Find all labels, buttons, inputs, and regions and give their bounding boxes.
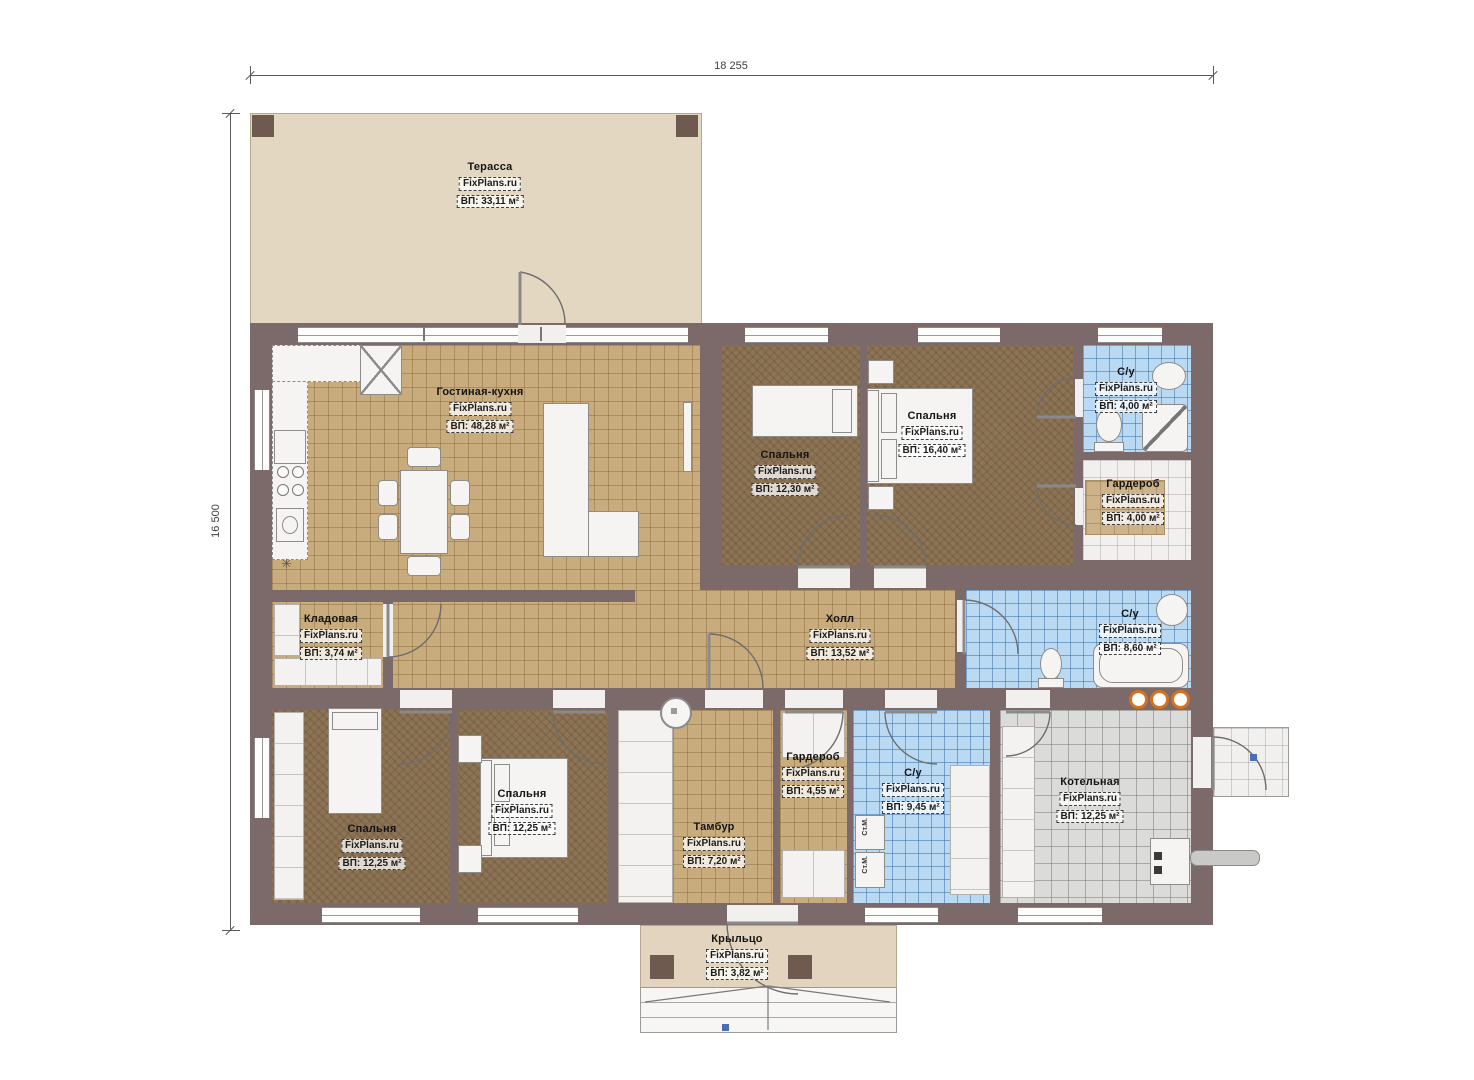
toilet-tank-master xyxy=(1094,442,1124,452)
brand-tag: FixPlans.ru xyxy=(1095,382,1157,395)
dining-chair xyxy=(450,480,470,506)
window-bathroom-master xyxy=(1098,327,1162,343)
brand-tag: FixPlans.ru xyxy=(882,783,944,796)
wall-pantry-top xyxy=(272,590,635,602)
door-opening-wardrobe-bottom xyxy=(785,690,843,708)
stove-burner xyxy=(277,466,289,478)
area-tag: ВП: 8,60 м² xyxy=(1099,642,1161,655)
room-name: Крыльцо xyxy=(706,933,768,945)
brand-tag: FixPlans.ru xyxy=(1099,624,1161,637)
door-opening-entrance xyxy=(727,905,798,923)
stove-burner xyxy=(292,484,304,496)
brand-tag: FixPlans.ru xyxy=(459,177,521,190)
door-opening-boiler xyxy=(1006,690,1050,708)
brand-tag: FixPlans.ru xyxy=(341,839,403,852)
boiler-control xyxy=(1154,866,1162,874)
tv-unit xyxy=(683,402,692,472)
bed-pillow xyxy=(881,393,897,433)
stove-burner xyxy=(277,484,289,496)
bed-pillow xyxy=(332,712,378,730)
area-tag: ВП: 12,25 м² xyxy=(338,857,405,870)
wall-marker xyxy=(1150,690,1169,709)
room-label-bathroom-master: С/у FixPlans.ru ВП: 4,00 м² xyxy=(1095,366,1157,414)
room-label-wardrobe-bottom: Гардероб FixPlans.ru ВП: 4,55 м² xyxy=(782,751,844,799)
room-name: С/у xyxy=(882,767,944,779)
wall-wardrobe-bath xyxy=(1073,560,1191,590)
room-name: Спальня xyxy=(488,788,555,800)
dimension-label-width: 18 255 xyxy=(714,60,748,72)
wall-bath-wardrobe xyxy=(1083,452,1191,460)
window-mullion xyxy=(423,327,425,341)
door-opening-bathroom-master xyxy=(1075,379,1083,417)
room-name: Гостиная-кухня xyxy=(436,386,523,398)
area-tag: ВП: 7,20 м² xyxy=(683,855,745,868)
closet-bedroom-left xyxy=(274,712,304,900)
room-name: Терасса xyxy=(457,161,524,173)
stove-burner xyxy=(292,466,304,478)
brand-tag: FixPlans.ru xyxy=(706,949,768,962)
room-name: Холл xyxy=(806,613,873,625)
area-tag: ВП: 12,25 м² xyxy=(1056,810,1123,823)
room-name: Кладовая xyxy=(300,613,362,625)
nightstand xyxy=(458,735,482,763)
area-tag: ВП: 3,82 м² xyxy=(706,967,768,980)
kitchen-sink-bowl xyxy=(282,516,298,534)
door-opening-bedroom-top-left xyxy=(798,567,850,588)
room-name: Гардероб xyxy=(1102,478,1164,490)
room-label-boiler-room: Котельная FixPlans.ru ВП: 12,25 м² xyxy=(1056,776,1123,824)
area-tag: ВП: 33,11 м² xyxy=(457,195,524,208)
room-label-terrace: Терасса FixPlans.ru ВП: 33,11 м² xyxy=(457,161,524,209)
closet-corridor xyxy=(618,710,673,903)
area-tag: ВП: 4,00 м² xyxy=(1102,512,1164,525)
window-boiler-room xyxy=(1018,907,1102,923)
washing-machine-1 xyxy=(855,815,885,850)
room-label-vestibule: Тамбур FixPlans.ru ВП: 7,20 м² xyxy=(683,821,745,869)
bed-pillow xyxy=(881,439,897,479)
area-tag: ВП: 12,25 м² xyxy=(488,822,555,835)
wall-master-suite xyxy=(1073,345,1083,560)
kitchen-fridge xyxy=(360,345,402,395)
room-name: С/у xyxy=(1095,366,1157,378)
wall-marker xyxy=(1171,690,1190,709)
nightstand xyxy=(458,845,482,873)
room-label-porch: Крыльцо FixPlans.ru ВП: 3,82 м² xyxy=(706,933,768,981)
door-opening-pantry xyxy=(383,604,393,657)
terrace-floor xyxy=(250,113,702,327)
door-opening-boiler-exterior xyxy=(1193,737,1211,788)
dining-chair xyxy=(450,514,470,540)
nightstand xyxy=(868,360,894,384)
window-mullion xyxy=(540,327,542,341)
brand-tag: FixPlans.ru xyxy=(449,402,511,415)
kitchen-counter-top xyxy=(272,345,362,382)
kitchen-cooktop xyxy=(274,430,306,464)
toilet-base-main xyxy=(1038,678,1064,688)
room-label-bedroom-master: Спальня FixPlans.ru ВП: 16,40 м² xyxy=(898,410,965,458)
brand-tag: FixPlans.ru xyxy=(754,465,816,478)
porch-floor xyxy=(640,925,897,989)
window-terrace-glazing xyxy=(298,327,688,343)
water-heater-core xyxy=(671,708,677,714)
room-label-bathroom-main: С/у FixPlans.ru ВП: 8,60 м² xyxy=(1099,608,1161,656)
kitchen-symbol: ✳ xyxy=(281,556,292,572)
porch-steps xyxy=(640,987,897,1033)
brand-tag: FixPlans.ru xyxy=(809,629,871,642)
room-name: Спальня xyxy=(338,823,405,835)
window-kitchen xyxy=(254,390,270,470)
area-tag: ВП: 13,52 м² xyxy=(806,647,873,660)
wall-marker xyxy=(1129,690,1148,709)
room-label-living-kitchen: Гостиная-кухня FixPlans.ru ВП: 48,28 м² xyxy=(436,386,523,434)
wall-laundry-boiler xyxy=(990,710,1000,903)
dimension-line-left xyxy=(230,113,231,930)
brand-tag: FixPlans.ru xyxy=(300,629,362,642)
wall-bedrooms xyxy=(860,345,867,565)
area-tag: ВП: 4,00 м² xyxy=(1095,400,1157,413)
window-bedroom-master xyxy=(918,327,1000,343)
terrace-column xyxy=(676,115,698,137)
wall-wardrobe-laundry xyxy=(847,710,853,903)
area-tag: ВП: 3,74 м² xyxy=(300,647,362,660)
window-bedroom-bottom-mid xyxy=(478,907,578,923)
room-name: Спальня xyxy=(898,410,965,422)
area-tag: ВП: 48,28 м² xyxy=(446,420,513,433)
room-name: Спальня xyxy=(751,449,818,461)
dining-chair xyxy=(407,556,441,576)
bed-headboard xyxy=(867,390,879,482)
door-opening-bedroom-bm xyxy=(553,690,605,708)
room-label-hall: Холл FixPlans.ru ВП: 13,52 м² xyxy=(806,613,873,661)
door-opening-bedroom-master xyxy=(874,567,926,588)
window-bedroom-left xyxy=(254,738,270,818)
room-name: Котельная xyxy=(1056,776,1123,788)
washing-machine-label: Ст.М. xyxy=(862,818,869,836)
porch-marker xyxy=(722,1024,729,1031)
toilet-bowl-main xyxy=(1040,648,1062,680)
door-opening-bathroom-main xyxy=(957,600,966,652)
stoop-marker xyxy=(1250,754,1257,761)
area-tag: ВП: 12,30 м² xyxy=(751,483,818,496)
room-label-wardrobe-master: Гардероб FixPlans.ru ВП: 4,00 м² xyxy=(1102,478,1164,526)
area-tag: ВП: 16,40 м² xyxy=(898,444,965,457)
floor-plan-canvas: 18 255 16 500 xyxy=(0,0,1474,1080)
room-label-bathroom-laundry: С/у FixPlans.ru ВП: 9,45 м² xyxy=(882,767,944,815)
dining-chair xyxy=(378,514,398,540)
washing-machine-label: Ст.М. xyxy=(862,856,869,874)
dining-table xyxy=(400,470,448,554)
washing-machine-2 xyxy=(855,852,885,888)
window-bedroom-bottom-left xyxy=(322,907,420,923)
wall-living-bedroom xyxy=(700,345,722,590)
wall-vestibule-wardrobe xyxy=(773,710,780,903)
brand-tag: FixPlans.ru xyxy=(491,804,553,817)
brand-tag: FixPlans.ru xyxy=(1102,494,1164,507)
wall-bedroom-corridor xyxy=(608,710,618,903)
closet-laundry xyxy=(950,765,990,895)
porch-column xyxy=(650,955,674,979)
wall-exterior-right xyxy=(1191,323,1213,925)
sofa-long-section xyxy=(543,403,589,557)
window-bathroom-laundry xyxy=(865,907,938,923)
door-opening-wardrobe-master xyxy=(1075,488,1083,525)
boiler-control xyxy=(1154,852,1162,860)
sofa-corner-section xyxy=(588,511,639,557)
closet-wardrobe-bottom xyxy=(782,850,845,898)
wall-bedrooms-bottom xyxy=(450,710,458,903)
room-label-pantry: Кладовая FixPlans.ru ВП: 3,74 м² xyxy=(300,613,362,661)
area-tag: ВП: 4,55 м² xyxy=(782,785,844,798)
room-label-bedroom-bottom-mid: Спальня FixPlans.ru ВП: 12,25 м² xyxy=(488,788,555,836)
door-opening-vestibule xyxy=(705,690,763,708)
dining-chair xyxy=(407,447,441,467)
door-opening-terrace xyxy=(518,325,566,343)
room-name: Гардероб xyxy=(782,751,844,763)
boiler-unit xyxy=(1150,838,1190,885)
brand-tag: FixPlans.ru xyxy=(782,767,844,780)
dimension-label-height: 16 500 xyxy=(210,504,222,538)
nightstand xyxy=(868,486,894,510)
room-name: С/у xyxy=(1099,608,1161,620)
brand-tag: FixPlans.ru xyxy=(683,837,745,850)
sink-master xyxy=(1152,362,1186,390)
closet-boiler xyxy=(1002,726,1035,898)
side-stoop xyxy=(1213,727,1289,797)
room-name: Тамбур xyxy=(683,821,745,833)
dining-chair xyxy=(378,480,398,506)
dimension-line-top xyxy=(250,75,1213,76)
bed-pillow xyxy=(832,389,852,433)
room-label-bedroom-bottom-left: Спальня FixPlans.ru ВП: 12,25 м² xyxy=(338,823,405,871)
door-opening-bathroom-laundry xyxy=(885,690,937,708)
vestibule-floor xyxy=(673,710,773,903)
room-label-bedroom-top-left: Спальня FixPlans.ru ВП: 12,30 м² xyxy=(751,449,818,497)
window-bedroom-top-left xyxy=(745,327,828,343)
door-opening-bedroom-bl xyxy=(400,690,452,708)
area-tag: ВП: 9,45 м² xyxy=(882,801,944,814)
closet-pantry-left xyxy=(274,604,300,656)
boiler-pipe xyxy=(1190,850,1260,866)
porch-column xyxy=(788,955,812,979)
closet-pantry-bottom xyxy=(274,658,382,686)
brand-tag: FixPlans.ru xyxy=(1059,792,1121,805)
terrace-column xyxy=(252,115,274,137)
brand-tag: FixPlans.ru xyxy=(901,426,963,439)
